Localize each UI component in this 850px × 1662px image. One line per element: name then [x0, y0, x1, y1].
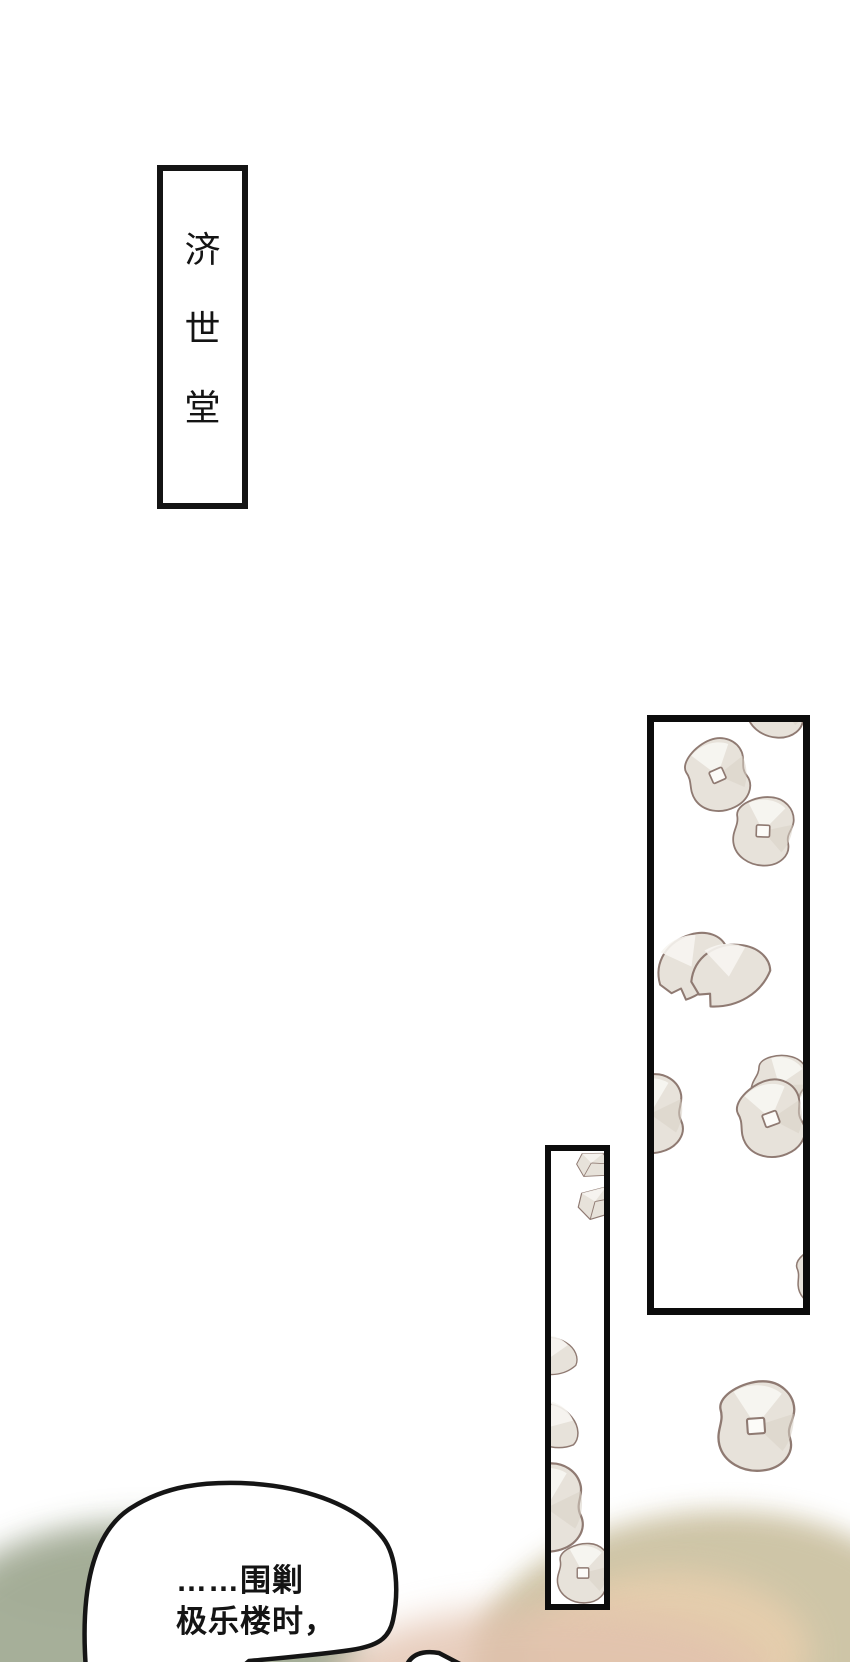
- coin-icon: [797, 1246, 803, 1306]
- coin-icon: [733, 1076, 803, 1161]
- speech-bubble-text: ……围剿 极乐楼时，: [176, 1560, 336, 1642]
- coin-half-icon: [551, 1326, 583, 1389]
- bubble-line: 极乐楼时，: [176, 1601, 336, 1642]
- signboard-char: 世: [184, 311, 220, 347]
- signboard-char: 济: [184, 232, 220, 268]
- coin-icon: [738, 722, 803, 745]
- coin-panel-small: [545, 1145, 610, 1610]
- speech-bubble-tail: [405, 1652, 460, 1662]
- coin-panel-large-art: [654, 722, 803, 1308]
- coin-panel-small-art: [551, 1151, 604, 1604]
- coin-icon: [551, 1463, 583, 1551]
- comic-page: 济 世 堂: [0, 0, 850, 1662]
- floating-coin-icon: [708, 1378, 804, 1474]
- signboard-char: 堂: [184, 390, 220, 426]
- coin-half-icon: [551, 1393, 585, 1462]
- bubble-line: ……围剿: [176, 1560, 336, 1601]
- paper-money-icon: [576, 1186, 604, 1221]
- coin-icon: [654, 1074, 683, 1153]
- signboard: 济 世 堂: [157, 165, 248, 509]
- coin-panel-large: [647, 715, 810, 1315]
- paper-money-icon: [575, 1151, 604, 1180]
